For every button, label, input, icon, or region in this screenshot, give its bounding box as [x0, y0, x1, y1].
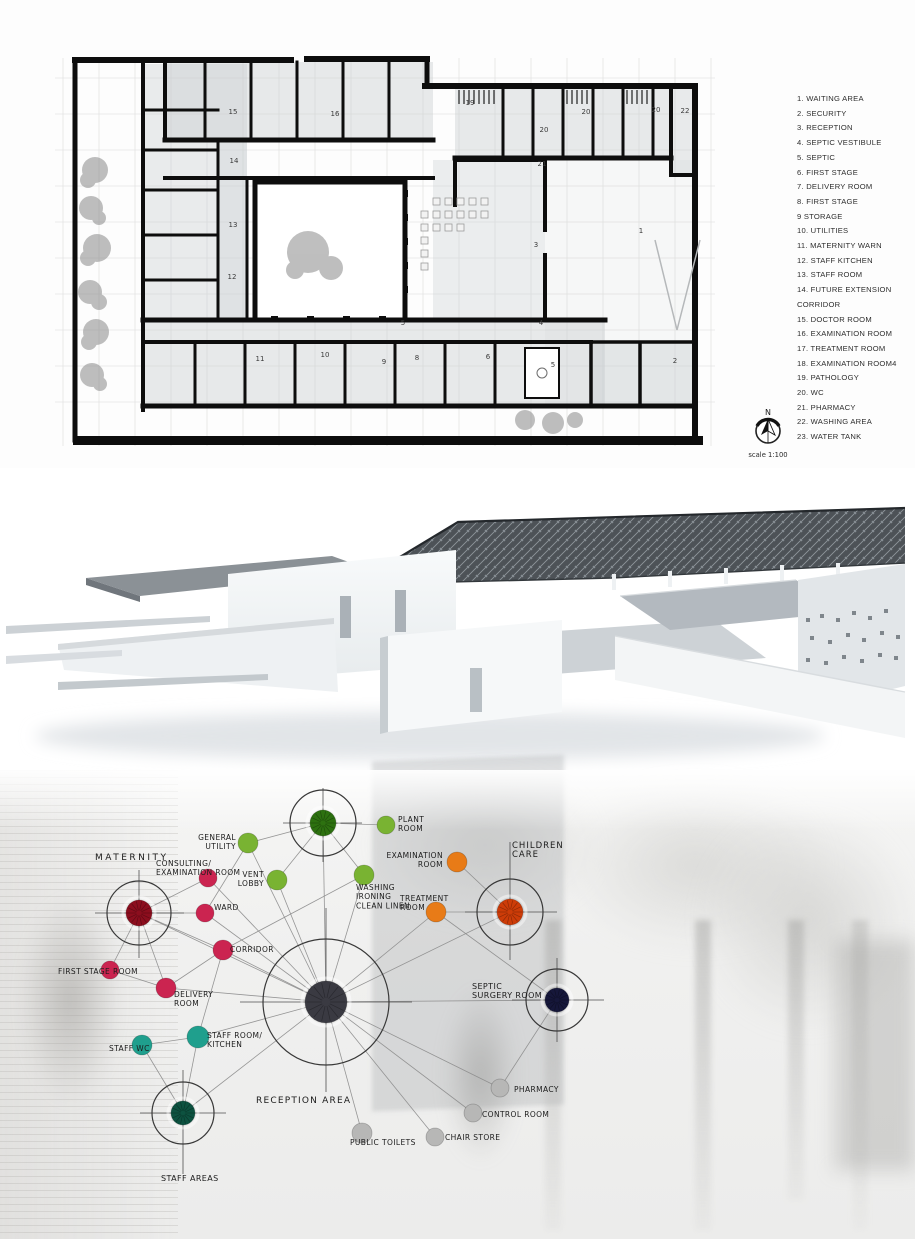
- legend-item: 1. WAITING AREA: [797, 92, 915, 107]
- bubble-label: GENERAL: [198, 833, 236, 842]
- legend-item: 9 STORAGE: [797, 210, 915, 225]
- legend-item: 19. PATHOLOGY: [797, 371, 915, 386]
- legend-item: 5. SEPTIC: [797, 151, 915, 166]
- floor-plan-drawing: 15161413121920202021221354111098652: [55, 30, 715, 460]
- legend-item: 14. FUTURE EXTENSION CORRIDOR: [797, 283, 915, 312]
- room-number: 19: [466, 99, 475, 107]
- bubble-label: ROOM: [418, 860, 443, 869]
- bubble-diagram: PLANTROOMGENERALUTILITYVENTLOBBYWASHINGI…: [0, 770, 915, 1239]
- legend-item: 11. MATERNITY WARN: [797, 239, 915, 254]
- bubble-label: PHARMACY: [514, 1085, 559, 1094]
- diagram-edge: [326, 1002, 435, 1137]
- room-number: 4: [539, 319, 544, 327]
- room-number: 14: [230, 157, 239, 165]
- room-number: 20: [652, 106, 661, 114]
- room-number: 15: [229, 108, 238, 116]
- legend-item: 2. SECURITY: [797, 107, 915, 122]
- bubble-node: [464, 1104, 482, 1122]
- bubble-label: ROOM: [400, 903, 425, 912]
- bubble-label: STAFF WC: [109, 1044, 150, 1053]
- north-arrow: N scale 1:100: [740, 398, 796, 462]
- bubble-label: IRONING: [356, 892, 391, 901]
- legend-item: 6. FIRST STAGE: [797, 166, 915, 181]
- bubble-label: PUBLIC TOILETS: [350, 1138, 416, 1147]
- legend-item: 12. STAFF KITCHEN: [797, 254, 915, 269]
- bubble-label: CORRIDOR: [230, 945, 274, 954]
- legend-item: 15. DOCTOR ROOM: [797, 313, 915, 328]
- legend-item: 10. UTILITIES: [797, 224, 915, 239]
- bubble-node: [426, 1128, 444, 1146]
- bubble-node: [196, 904, 214, 922]
- bubble-label: RECEPTION AREA: [256, 1096, 351, 1106]
- room-number: 10: [321, 351, 330, 359]
- bubble-label: VENT: [242, 870, 264, 879]
- bubble-label: WARD: [214, 903, 239, 912]
- legend-item: 20. WC: [797, 386, 915, 401]
- room-number: 5: [401, 319, 405, 327]
- bubble-label: ROOM: [398, 824, 423, 833]
- bubble-node: [377, 816, 395, 834]
- legend-item: 4. SEPTIC VESTIBULE: [797, 136, 915, 151]
- bubble-label: FIRST STAGE ROOM: [58, 967, 138, 976]
- bubble-label: SURGERY ROOM: [472, 991, 542, 1000]
- bubble-node: [354, 865, 374, 885]
- legend-list: 1. WAITING AREA2. SECURITY3. RECEPTION4.…: [797, 92, 915, 445]
- room-number: 22: [681, 107, 690, 115]
- bubble-label: STAFF ROOM/: [207, 1031, 262, 1040]
- bubble-node: [491, 1079, 509, 1097]
- bubble-label: KITCHEN: [207, 1040, 242, 1049]
- legend-item: 23. WATER TANK: [797, 430, 915, 445]
- room-number: 20: [540, 126, 549, 134]
- building-render: [0, 468, 915, 770]
- bubble-node: [267, 870, 287, 890]
- bubble-node: [187, 1026, 209, 1048]
- room-number: 5: [551, 361, 555, 369]
- diagram-edge: [323, 823, 326, 1002]
- legend-item: 17. TREATMENT ROOM: [797, 342, 915, 357]
- bubble-label: CONSULTING/: [156, 859, 211, 868]
- bubble-label: CARE: [512, 850, 539, 860]
- room-number: 12: [228, 273, 237, 281]
- legend-item: 8. FIRST STAGE: [797, 195, 915, 210]
- bubble-label: STAFF AREAS: [161, 1174, 219, 1183]
- north-label: N: [765, 408, 771, 417]
- bubble-label: CONTROL ROOM: [482, 1110, 549, 1119]
- room-number: 11: [256, 355, 265, 363]
- bubble-label: EXAMINATION: [386, 851, 443, 860]
- room-number: 21: [538, 160, 547, 168]
- legend-item: 13. STAFF ROOM: [797, 268, 915, 283]
- room-number: 13: [229, 221, 238, 229]
- legend: 1. WAITING AREA2. SECURITY3. RECEPTION4.…: [797, 92, 915, 445]
- water-tank: [525, 348, 559, 398]
- scale-label: scale 1:100: [748, 451, 787, 459]
- presentation-board: 15161413121920202021221354111098652 1. W…: [0, 0, 915, 1239]
- bubble-label: WASHING: [356, 883, 395, 892]
- bubble-label: TREATMENT: [399, 894, 449, 903]
- bubble-node: [447, 852, 467, 872]
- room-number: 20: [582, 108, 591, 116]
- bubble-node: [238, 833, 258, 853]
- bubble-label: EXAMINATION ROOM: [156, 868, 240, 877]
- room-number: 6: [486, 353, 491, 361]
- bubble-label: DELIVERY: [174, 990, 213, 999]
- legend-item: 18. EXAMINATION ROOM4: [797, 357, 915, 372]
- legend-item: 7. DELIVERY ROOM: [797, 180, 915, 195]
- bubble-label: ROOM: [174, 999, 199, 1008]
- bubble-node: [426, 902, 446, 922]
- bubble-label: UTILITY: [205, 842, 236, 851]
- legend-item: 16. EXAMINATION ROOM: [797, 327, 915, 342]
- bubble-node: [156, 978, 176, 998]
- legend-item: 3. RECEPTION: [797, 121, 915, 136]
- room-number: 9: [382, 358, 386, 366]
- room-number: 8: [415, 354, 419, 362]
- bubble-label: SEPTIC: [472, 982, 502, 991]
- bubble-label: PLANT: [398, 815, 424, 824]
- room-number: 1: [639, 227, 643, 235]
- bubble-label: LOBBY: [238, 879, 264, 888]
- room-number: 3: [534, 241, 538, 249]
- bubble-label: CHAIR STORE: [445, 1133, 500, 1142]
- door-opening: [340, 596, 351, 638]
- diagram-edge: [326, 1002, 500, 1088]
- door-opening: [395, 590, 406, 632]
- room-number: 16: [331, 110, 340, 118]
- legend-item: 22. WASHING AREA: [797, 415, 915, 430]
- legend-item: 21. PHARMACY: [797, 401, 915, 416]
- room-number: 2: [673, 357, 677, 365]
- diagram-edge: [248, 843, 326, 1002]
